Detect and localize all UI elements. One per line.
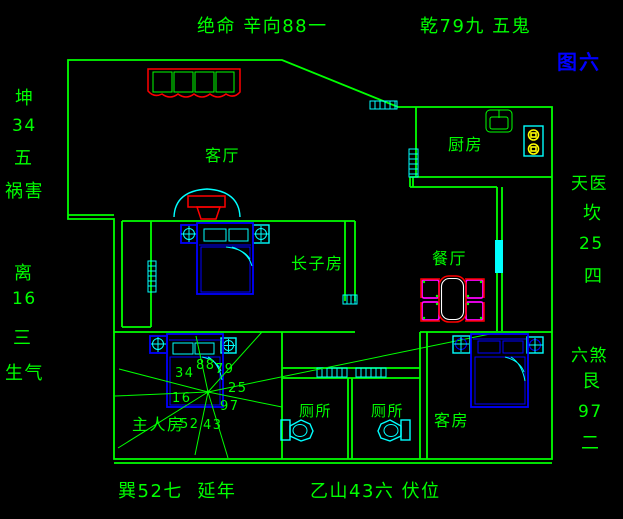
annotation-left-lower-2: 三 — [13, 328, 33, 349]
window-closet-strip-icon — [148, 261, 156, 292]
annotation-right-lower-1: 艮 — [582, 371, 602, 392]
compass-number-97: 97 — [220, 399, 240, 414]
annotation-right-upper-3: 四 — [584, 266, 604, 287]
compass-number-52: 52 — [180, 417, 200, 432]
annotation-left-upper-0: 坤 — [15, 88, 35, 109]
figure-number-label: 图六 — [557, 50, 601, 74]
armchair-tv-icon — [174, 189, 240, 219]
room-label-eldest-son: 长子房 — [291, 254, 344, 273]
room-label-toilet-right: 厕所 — [371, 402, 404, 420]
lamp-icon — [181, 226, 197, 242]
annotation-top-left: 绝命 辛向88一 — [197, 16, 328, 37]
annotation-left-upper-3: 祸害 — [5, 181, 44, 202]
dining-set — [421, 276, 484, 322]
annotation-bottom-left: 巽52七 延年 — [118, 481, 236, 502]
compass-number-43: 43 — [203, 418, 223, 433]
room-label-master: 主人房 — [132, 415, 185, 434]
guest-bed — [453, 334, 543, 407]
lamp-icon — [222, 339, 235, 352]
window-toilet-left-icon — [317, 368, 347, 377]
annotation-left-lower-1: 16 — [12, 289, 37, 309]
compass-number-88: 88 — [196, 358, 216, 373]
room-label-dining: 餐厅 — [432, 249, 467, 268]
compass-number-25: 25 — [228, 381, 248, 396]
annotation-right-upper-0: 天医 — [571, 174, 608, 194]
annotation-right-lower-0: 六煞 — [571, 346, 608, 366]
annotation-left-upper-1: 34 — [12, 116, 37, 136]
annotation-left-lower-0: 离 — [14, 263, 34, 284]
floorplan-drawing: 绝命 辛向88一 乾79九 五鬼 图六 坤 34 五 祸害 离 16 三 生气 … — [0, 0, 623, 519]
dining-chair — [465, 279, 484, 298]
room-label-living: 客厅 — [205, 146, 240, 165]
compass-number-79: 79 — [215, 362, 235, 377]
compass-number-16: 16 — [172, 391, 192, 406]
kitchen-sink-icon — [486, 110, 512, 132]
toilet-left-icon — [281, 420, 313, 441]
room-label-kitchen: 厨房 — [448, 135, 483, 154]
annotation-right-upper-1: 坎 — [583, 203, 603, 224]
compass-number-34: 34 — [175, 366, 195, 381]
dining-chair — [421, 279, 440, 298]
annotation-right-upper-2: 25 — [579, 234, 604, 254]
dining-chair — [465, 302, 484, 321]
lamp-icon — [528, 338, 543, 353]
dining-chair — [421, 302, 440, 321]
eldest-bed — [181, 223, 269, 294]
room-label-toilet-left: 厕所 — [299, 402, 332, 420]
annotation-top-right: 乾79九 五鬼 — [420, 16, 531, 37]
window-dining-right-icon — [495, 240, 503, 273]
window-toilet-right-icon — [356, 368, 386, 377]
lamp-icon — [151, 337, 166, 352]
lamp-icon — [253, 226, 269, 242]
planter-box — [148, 69, 240, 97]
dining-table — [439, 276, 466, 322]
toilet-right-icon — [378, 420, 410, 441]
annotation-bottom-right: 乙山43六 伏位 — [310, 481, 441, 502]
room-label-guest: 客房 — [434, 411, 469, 430]
annotation-right-lower-3: 二 — [581, 433, 601, 454]
stove-icon — [524, 126, 543, 156]
annotation-left-upper-2: 五 — [14, 148, 34, 169]
compass-center — [206, 390, 209, 393]
annotation-right-lower-2: 97 — [578, 402, 603, 422]
annotation-left-lower-3: 生气 — [5, 363, 44, 384]
cad-floorplan-canvas[interactable]: 绝命 辛向88一 乾79九 五鬼 图六 坤 34 五 祸害 离 16 三 生气 … — [0, 0, 623, 519]
